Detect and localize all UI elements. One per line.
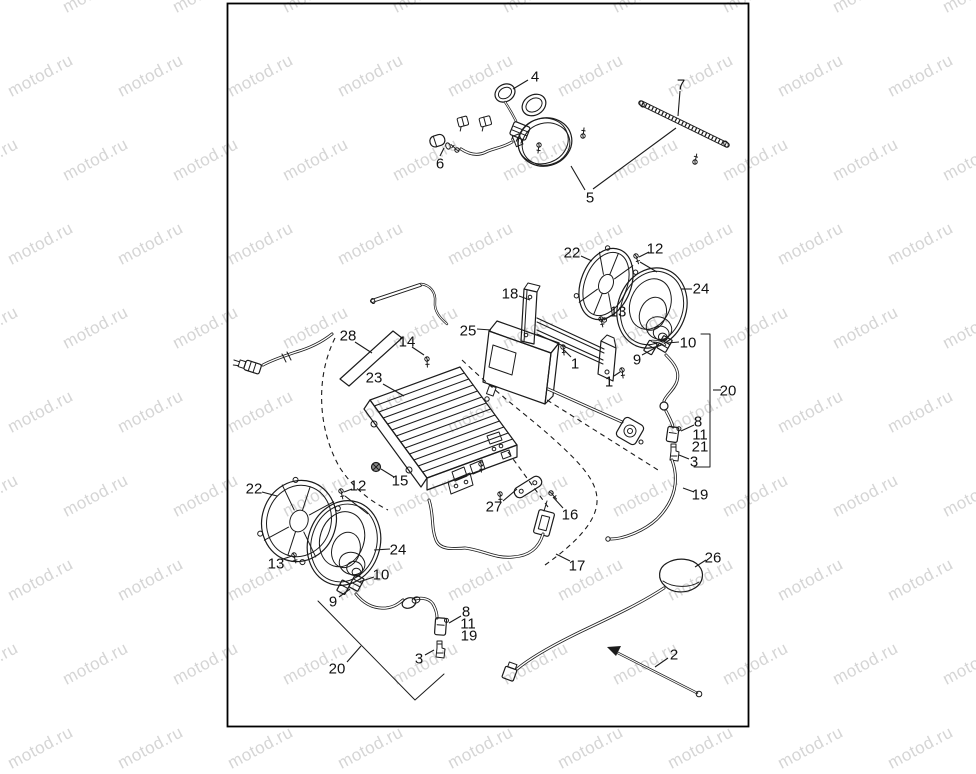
leader-line (655, 658, 668, 667)
cable-19-right (606, 460, 676, 541)
harness-clip (479, 116, 493, 131)
leader-line (513, 80, 528, 89)
part-callout-18-8: 18 (502, 286, 519, 303)
leader-line (667, 342, 679, 343)
leader-line (449, 616, 461, 623)
gps-plug (502, 661, 519, 681)
part-callout-13-7: 13 (610, 304, 627, 321)
part-callout-14-21: 14 (399, 334, 416, 351)
antenna-mast (639, 100, 729, 165)
part-callout-19-32: 19 (461, 628, 478, 645)
part-callout-26-38: 26 (705, 550, 722, 567)
leader-line (679, 455, 689, 459)
part-callout-1-11: 1 (605, 374, 613, 391)
wiring-harness-assembly (429, 80, 589, 172)
part-callout-4-0: 4 (531, 69, 539, 86)
part-callout-17-37: 17 (569, 558, 586, 575)
part-callout-16-36: 16 (562, 507, 579, 524)
callout-numbers: 4657221224131825119102081121319281423151… (246, 69, 737, 678)
wire-connectors-right (644, 330, 682, 461)
leader-line (571, 166, 585, 190)
leader-line (678, 91, 680, 116)
part-callout-19-19: 19 (692, 487, 709, 504)
grommet (372, 463, 381, 472)
diagram-border (228, 4, 749, 727)
part-callout-7-3: 7 (677, 77, 685, 94)
mounting-rails (537, 318, 627, 381)
bracket-strap (512, 474, 543, 499)
leader-line (425, 650, 434, 655)
part-callout-25-9: 25 (460, 323, 477, 340)
part-callout-22-4: 22 (564, 245, 581, 262)
part-callout-5-2: 5 (586, 190, 594, 207)
power-cable (232, 334, 332, 374)
leader-line (283, 556, 292, 559)
part-callout-9-12: 9 (633, 352, 641, 369)
part-callout-2-39: 2 (670, 647, 678, 664)
part-callout-6-1: 6 (436, 156, 444, 173)
speaker-grille-left (251, 471, 347, 572)
part-callout-3-18: 3 (690, 454, 698, 471)
part-callout-23-22: 23 (366, 370, 383, 387)
part-callout-28-20: 28 (340, 328, 357, 345)
part-callout-22-25: 22 (246, 481, 263, 498)
harness-clip (457, 116, 470, 131)
part-callout-13-26: 13 (268, 556, 285, 573)
pull-cable (607, 646, 702, 697)
radio-unit (483, 321, 645, 446)
part-callout-24-27: 24 (390, 542, 407, 559)
leader-line (593, 128, 676, 189)
part-callout-10-13: 10 (680, 335, 697, 352)
leader-line (477, 329, 491, 330)
part-callout-20-34: 20 (329, 661, 346, 678)
group-bracket-left (318, 601, 444, 700)
part-callout-9-29: 9 (329, 594, 337, 611)
leader-line (614, 372, 620, 376)
part-callout-20-14: 20 (720, 383, 737, 400)
leader-line (262, 492, 277, 496)
parts-diagram: 4657221224131825119102081121319281423151… (0, 0, 976, 732)
leader-lines (262, 80, 721, 667)
part-callout-10-28: 10 (373, 567, 390, 584)
leader-line (581, 256, 592, 261)
wire-connectors-left (337, 570, 449, 658)
diagram-page: motod.rumotod.rumotod.rumotod.rumotod.ru… (0, 0, 976, 732)
antenna-whip (370, 284, 447, 324)
knob-6 (429, 133, 447, 148)
part-callout-3-33: 3 (415, 651, 423, 668)
part-callout-15-23: 15 (392, 473, 409, 490)
part-callout-12-5: 12 (647, 241, 664, 258)
leader-line (347, 646, 361, 662)
part-callout-12-24: 12 (350, 478, 367, 495)
part-callout-27-35: 27 (486, 499, 503, 516)
part-callout-1-10: 1 (571, 356, 579, 373)
power-plug (232, 356, 262, 374)
part-callout-24-6: 24 (693, 281, 710, 298)
leader-line (355, 342, 372, 353)
